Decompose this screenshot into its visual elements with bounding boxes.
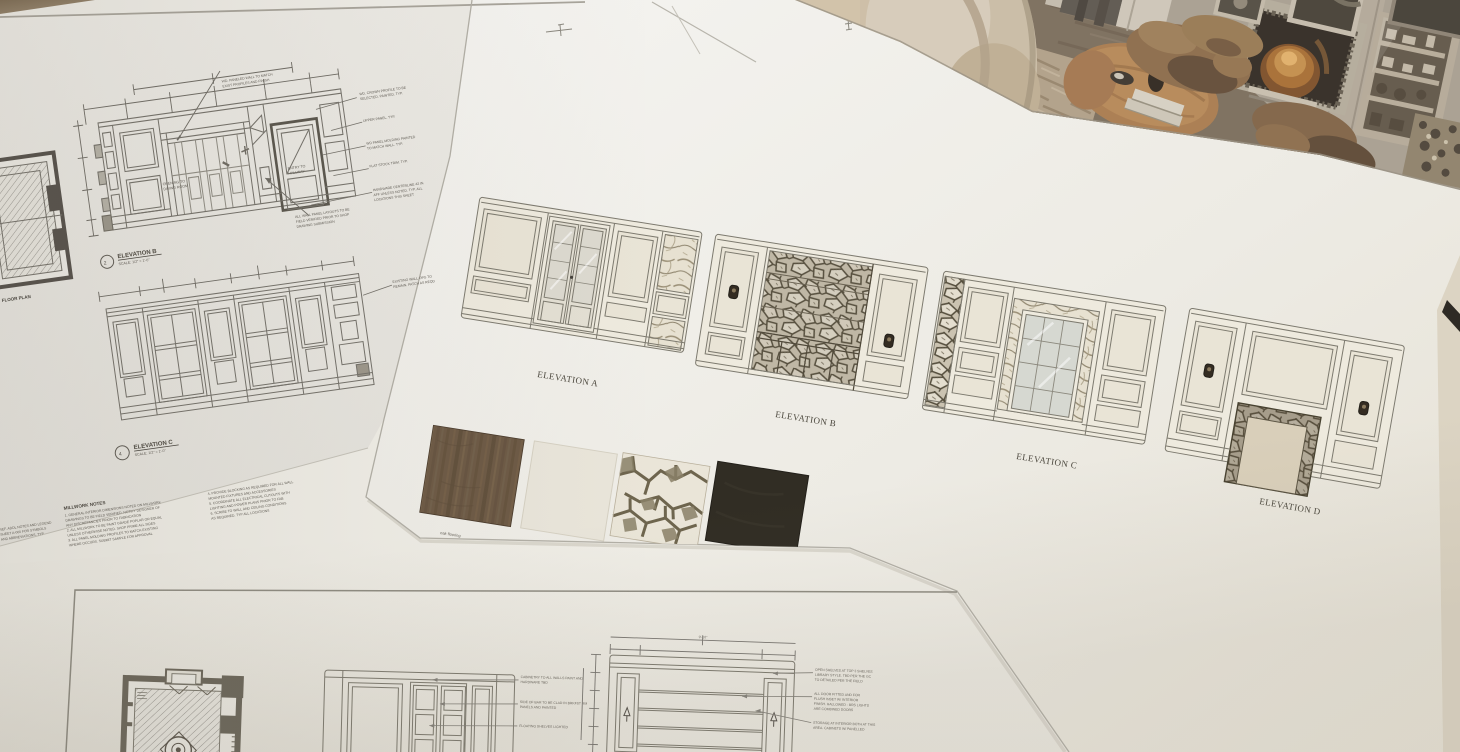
svg-text:HARDWARE TBD: HARDWARE TBD [520,680,548,685]
svg-text:9'-10": 9'-10" [699,635,709,639]
